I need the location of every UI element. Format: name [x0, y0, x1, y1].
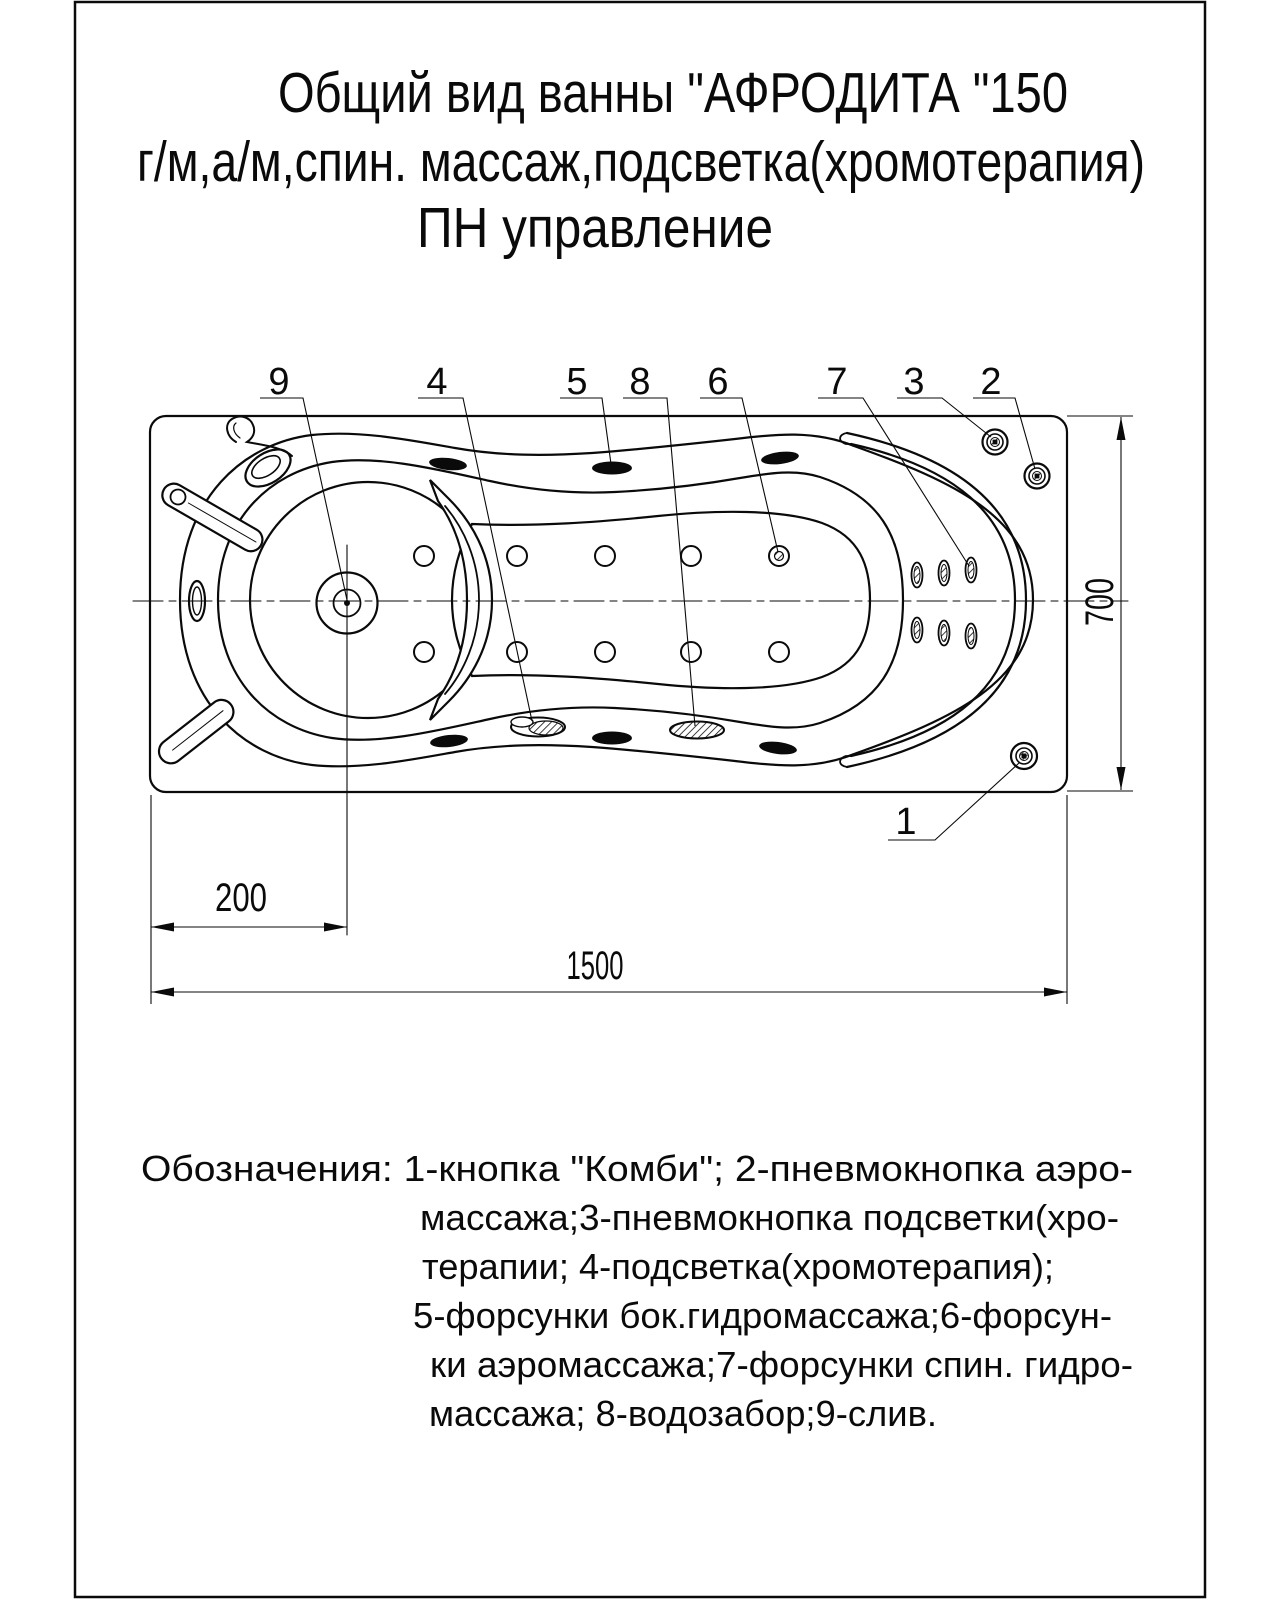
dim-drain-offset: 200: [215, 876, 267, 920]
legend-line-2: массажа;3-пневмокнопка подсветки(хро-: [420, 1197, 1119, 1238]
callout-2: 2: [980, 361, 1001, 403]
title-line-3: ПН управление: [417, 196, 773, 260]
chromotherapy-light: [511, 717, 565, 737]
lever-handle-lower: [154, 695, 238, 768]
callout-1: 1: [895, 801, 916, 843]
callout-5: 5: [566, 361, 587, 403]
callout-4: 4: [426, 361, 447, 403]
callout-7: 7: [826, 361, 847, 403]
combi-button: [1011, 743, 1037, 769]
basin-outer-contour: [180, 434, 1033, 767]
bathtub-top-view: [133, 416, 1128, 935]
faucet: [227, 417, 297, 495]
legend: Обозначения: 1-кнопка "Комби"; 2-пневмок…: [141, 1148, 1133, 1434]
drawing-title: Общий вид ванны "АФРОДИТА "150 г/м,а/м,с…: [137, 61, 1145, 260]
drawing-page: Общий вид ванны "АФРОДИТА "150 г/м,а/м,с…: [0, 0, 1280, 1600]
grab-bar: [840, 433, 1026, 767]
legend-line-1: Обозначения: 1-кнопка "Комби"; 2-пневмок…: [141, 1148, 1133, 1189]
title-line-2: г/м,а/м,спин. массаж,подсветка(хромотера…: [137, 130, 1145, 194]
dim-length: 1500: [567, 944, 624, 988]
pneumo-button-aero: [1025, 464, 1050, 489]
dim-width: 700: [1078, 578, 1122, 626]
legend-line-3: терапии; 4-подсветка(хромотерапия);: [422, 1246, 1054, 1287]
callout-9: 9: [268, 361, 289, 403]
callout-6: 6: [707, 361, 728, 403]
water-intake: [670, 722, 724, 739]
dimension-values: 200 1500 700: [215, 578, 1122, 988]
bathtub-general-view-drawing: Общий вид ванны "АФРОДИТА "150 г/м,а/м,с…: [0, 0, 1280, 1600]
back-hydromassage-jets: [912, 558, 977, 649]
callout-8: 8: [629, 361, 650, 403]
title-line-1: Общий вид ванны "АФРОДИТА "150: [278, 61, 1068, 125]
basin-inner-contour: [218, 460, 903, 740]
legend-line-6: массажа; 8-водозабор;9-слив.: [429, 1393, 937, 1434]
callout-3: 3: [903, 361, 924, 403]
backrest: [430, 480, 492, 720]
legend-line-4: 5-форсунки бок.гидромассажа;6-форсун-: [413, 1295, 1112, 1336]
legend-line-5: ки аэромассажа;7-форсунки спин. гидро-: [430, 1344, 1133, 1385]
